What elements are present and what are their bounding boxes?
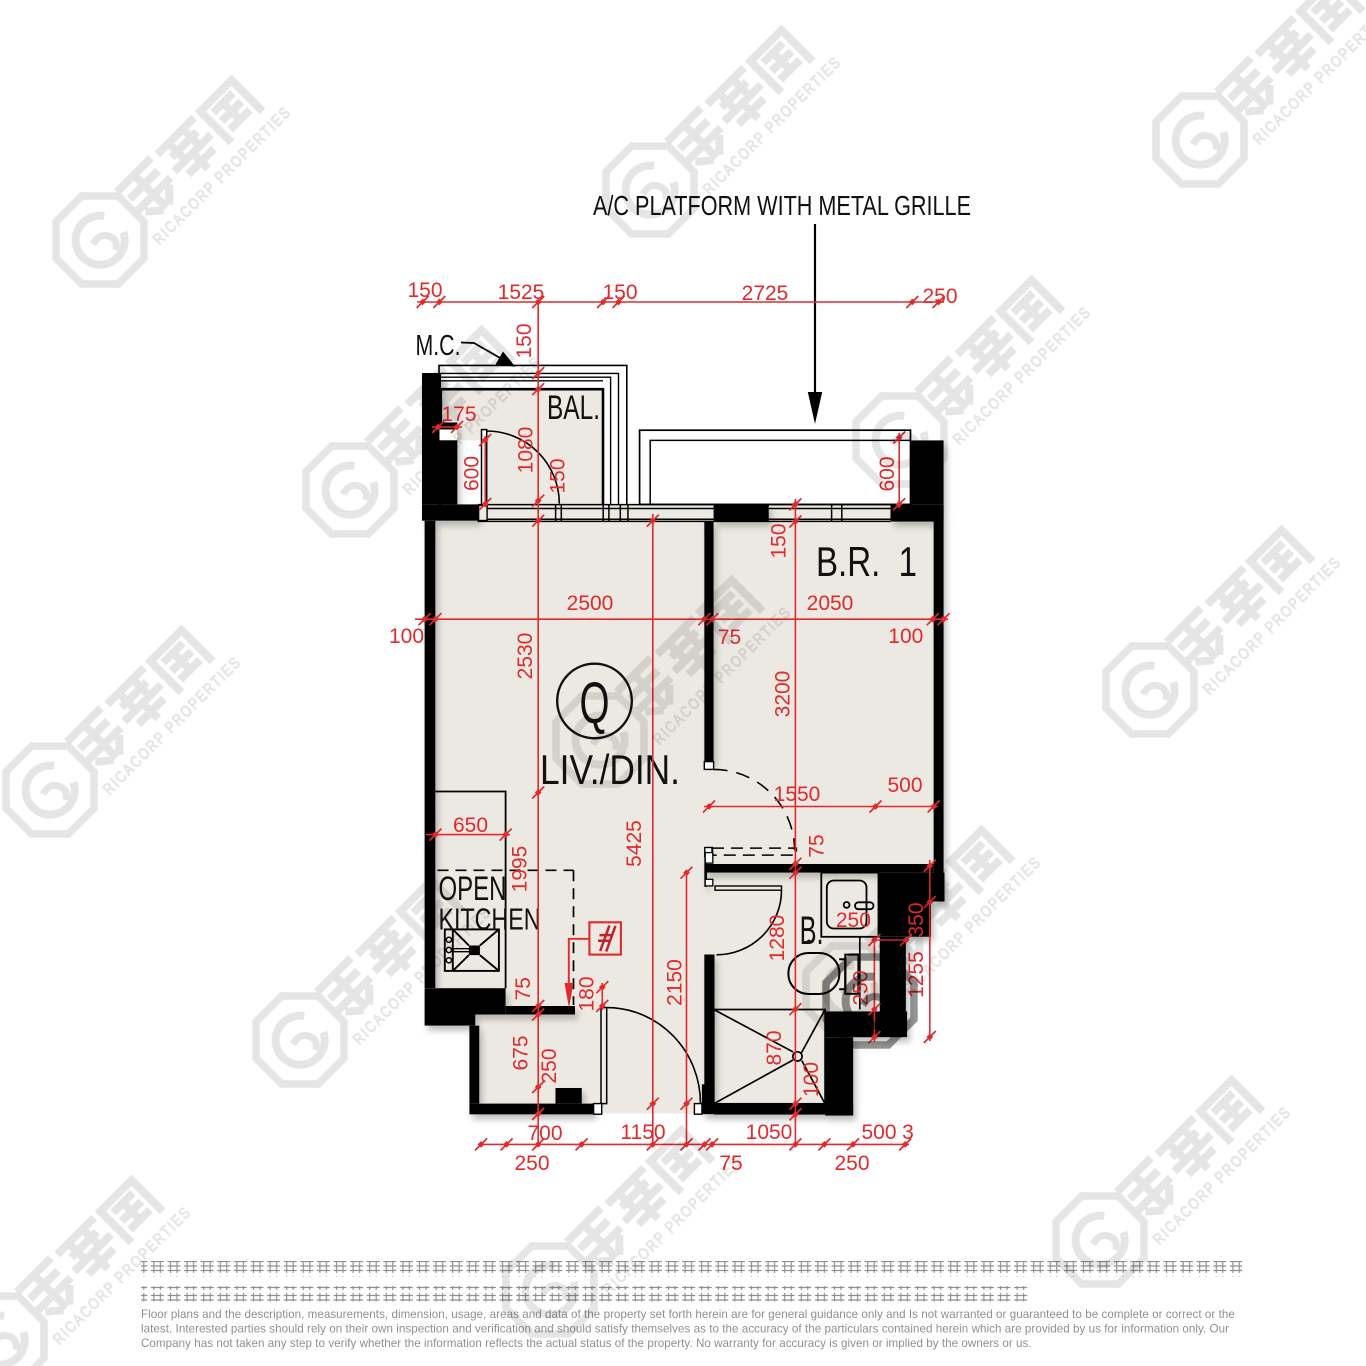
svg-text:2050: 2050 [807,592,854,615]
svg-text:1080: 1080 [514,427,537,474]
svg-text:150: 150 [407,279,442,302]
svg-text:250: 250 [922,285,957,308]
svg-text:870: 870 [763,1030,786,1065]
svg-text:Floor plans and the descriptio: Floor plans and the description, measure… [141,1308,1235,1321]
svg-text:75: 75 [512,977,535,1000]
svg-text:1550: 1550 [774,783,821,806]
svg-text:B.: B. [800,909,824,953]
svg-text:500: 500 [861,1121,896,1144]
svg-text:75: 75 [805,834,828,857]
svg-text:1150: 1150 [620,1121,665,1144]
svg-text:100: 100 [888,625,923,648]
svg-text:150: 150 [767,523,790,558]
svg-text:600: 600 [460,456,483,491]
svg-text:250: 250 [514,1152,549,1175]
svg-text:250: 250 [836,909,871,932]
svg-text:180: 180 [575,976,598,1011]
svg-text:500: 500 [887,774,922,797]
svg-text:B.R. 1: B.R. 1 [816,538,917,585]
svg-text:2725: 2725 [742,282,789,305]
svg-text:latest. Interested parties sho: latest. Interested parties should rely o… [141,1323,1229,1336]
svg-text:3: 3 [902,1121,914,1144]
svg-text:5425: 5425 [623,820,646,867]
svg-text:700: 700 [527,1122,562,1145]
svg-text:2150: 2150 [663,959,686,1006]
svg-text:100: 100 [389,625,424,648]
svg-text:150: 150 [546,458,569,493]
svg-text:Company has not taken any step: Company has not taken any step to verify… [141,1337,1032,1350]
svg-text:250: 250 [834,1152,869,1175]
svg-text:1280: 1280 [766,915,789,962]
svg-text:150: 150 [602,281,637,304]
svg-text:3200: 3200 [771,671,794,718]
svg-text:675: 675 [509,1035,532,1070]
svg-text:250: 250 [538,1048,561,1083]
svg-text:1050: 1050 [746,1121,793,1144]
svg-text:BAL.: BAL. [547,389,600,427]
svg-text:2530: 2530 [514,633,537,680]
svg-text:2500: 2500 [567,592,614,615]
svg-text:1525: 1525 [498,281,545,304]
svg-text:1995: 1995 [508,846,531,893]
svg-text:100: 100 [800,1062,823,1097]
svg-text:650: 650 [453,814,488,837]
